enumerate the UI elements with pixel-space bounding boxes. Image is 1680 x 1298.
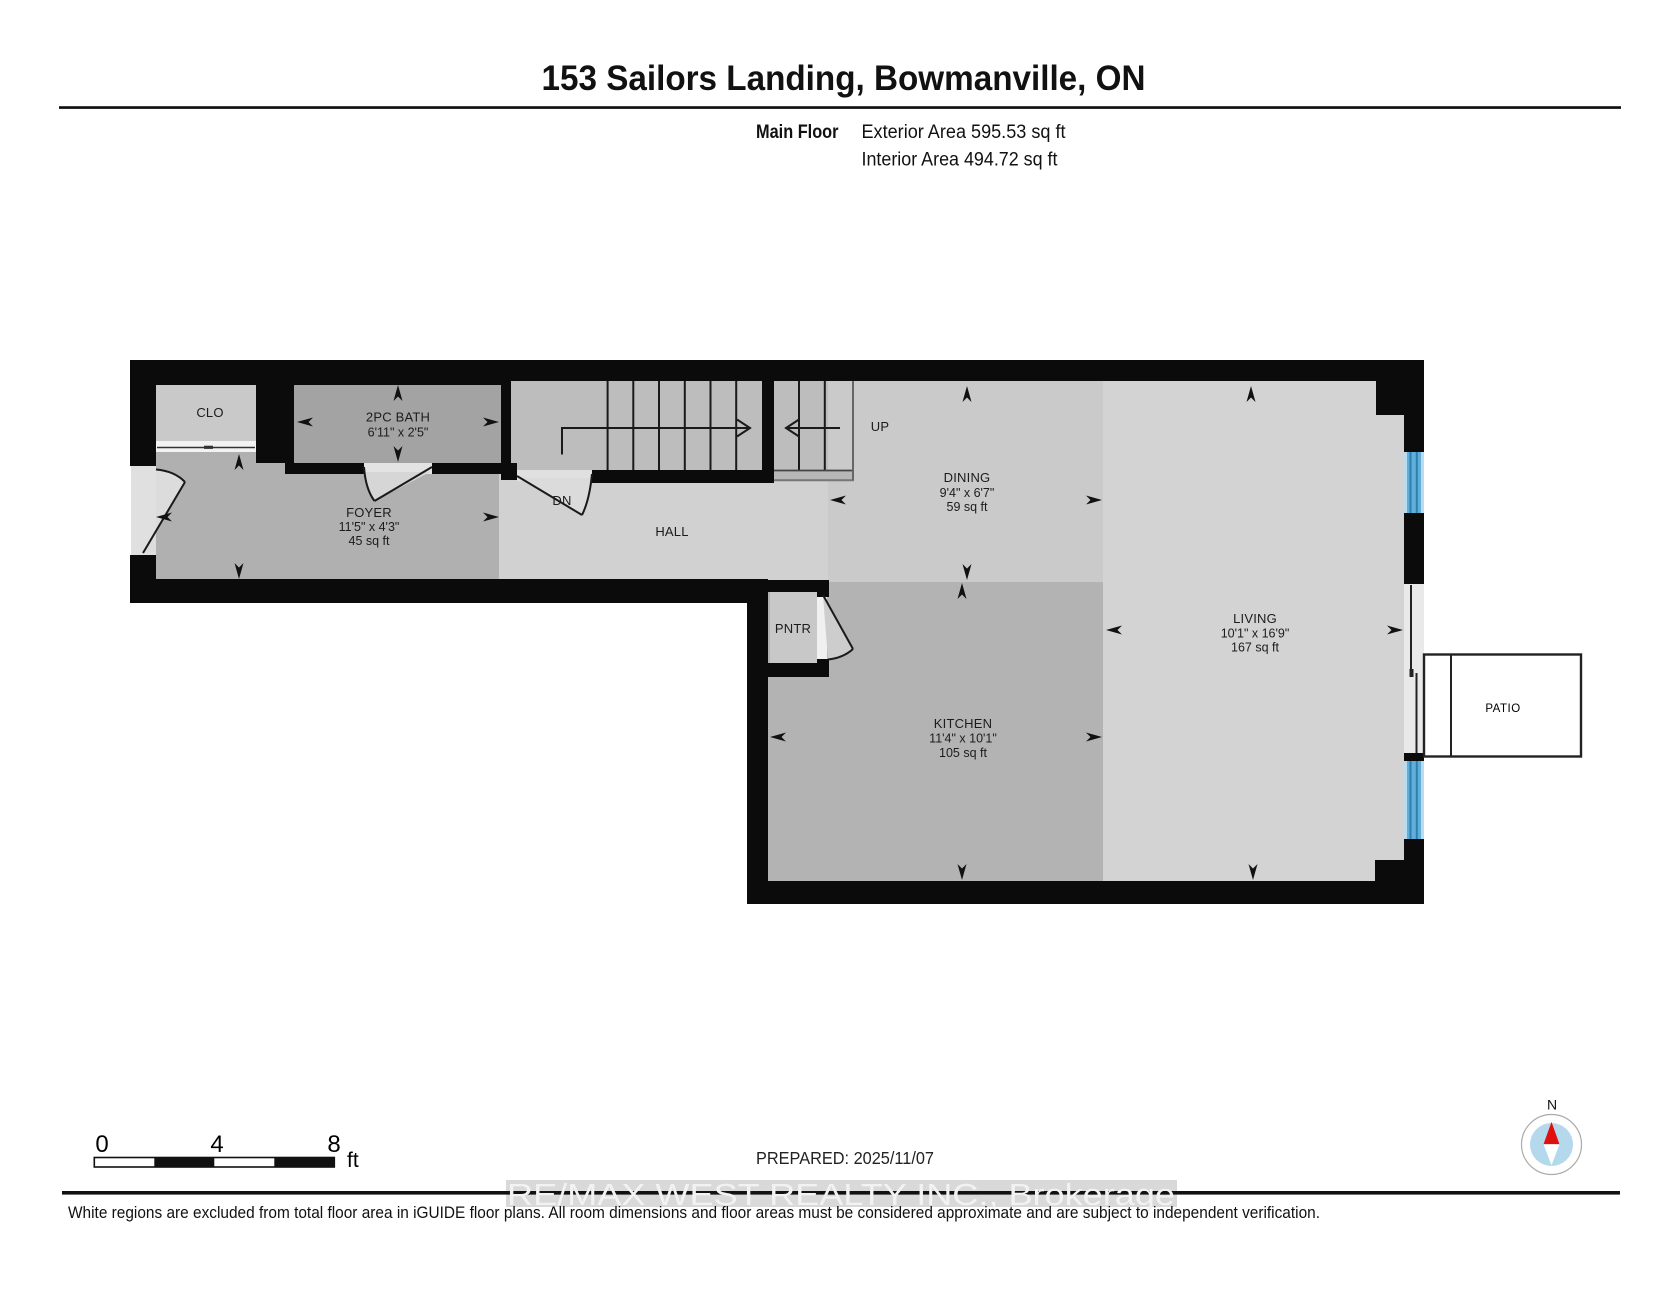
svg-text:White regions are excluded fro: White regions are excluded from total fl… (68, 1204, 1320, 1222)
svg-text:6'11" x 2'5": 6'11" x 2'5" (368, 426, 429, 440)
svg-text:153 Sailors Landing, Bowmanvil: 153 Sailors Landing, Bowmanville, ON (542, 59, 1146, 98)
svg-text:0: 0 (95, 1131, 108, 1158)
svg-text:59 sq ft: 59 sq ft (947, 500, 989, 514)
svg-text:45 sq ft: 45 sq ft (349, 534, 391, 548)
svg-text:DINING: DINING (944, 470, 991, 485)
svg-text:FOYER: FOYER (346, 505, 392, 520)
svg-text:PREPARED: 2025/11/07: PREPARED: 2025/11/07 (756, 1148, 934, 1168)
svg-text:UP: UP (871, 419, 889, 434)
svg-text:4: 4 (210, 1131, 223, 1158)
svg-text:11'4" x 10'1": 11'4" x 10'1" (929, 732, 997, 746)
svg-text:167 sq ft: 167 sq ft (1231, 641, 1279, 655)
svg-text:Main Floor: Main Floor (756, 122, 839, 143)
svg-text:HALL: HALL (655, 524, 688, 539)
svg-text:ft: ft (347, 1149, 359, 1172)
svg-text:KITCHEN: KITCHEN (934, 716, 992, 731)
svg-text:Interior Area 494.72 sq ft: Interior Area 494.72 sq ft (862, 150, 1059, 171)
svg-text:PATIO: PATIO (1485, 703, 1520, 715)
svg-text:9'4" x 6'7": 9'4" x 6'7" (940, 486, 995, 500)
svg-text:105 sq ft: 105 sq ft (939, 746, 987, 760)
svg-text:N: N (1547, 1097, 1557, 1113)
svg-text:PNTR: PNTR (775, 621, 811, 636)
svg-text:2PC BATH: 2PC BATH (366, 410, 430, 425)
svg-text:DN: DN (552, 493, 571, 508)
svg-text:8: 8 (327, 1131, 340, 1158)
svg-text:LIVING: LIVING (1233, 611, 1277, 626)
svg-text:Exterior Area 595.53 sq ft: Exterior Area 595.53 sq ft (862, 122, 1067, 143)
svg-text:10'1" x 16'9": 10'1" x 16'9" (1221, 627, 1290, 641)
svg-text:CLO: CLO (196, 405, 223, 420)
svg-text:11'5" x 4'3": 11'5" x 4'3" (339, 520, 400, 534)
